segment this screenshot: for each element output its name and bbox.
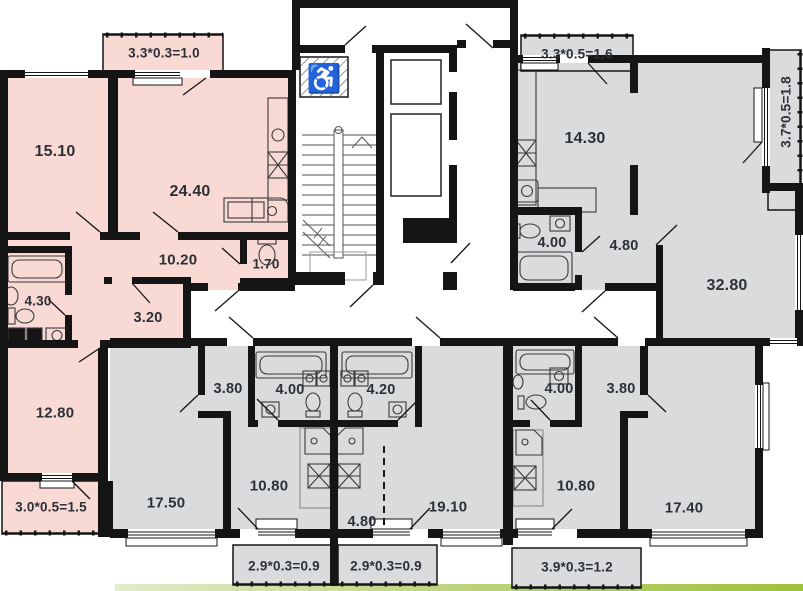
balcony-label: 3.7*0.5=1.8 <box>779 76 794 148</box>
room-area-label: 14.30 <box>564 130 605 148</box>
balcony-label: 3.3*0.5=1.6 <box>541 47 613 62</box>
balcony-label: 2.9*0.3=0.9 <box>248 559 320 574</box>
balcony-label: 2.9*0.3=0.9 <box>350 559 422 574</box>
room-area-label: 17.50 <box>147 495 186 512</box>
room-area-label: 10.80 <box>557 478 596 495</box>
balcony-label: 3.0*0.5=1.5 <box>15 500 87 515</box>
room-area-label: 4.00 <box>544 381 573 397</box>
floor-plan: ♿ <box>0 0 803 591</box>
room-area-label: 1.70 <box>252 257 279 272</box>
room-area-label: 4.00 <box>275 382 304 398</box>
room-area-label: 4.20 <box>366 382 395 398</box>
room-area-label: 15.10 <box>34 143 75 161</box>
room-area-label: 10.80 <box>250 478 289 495</box>
room-area-label: 4.80 <box>347 514 376 530</box>
balcony-label: 3.9*0.3=1.2 <box>541 560 613 575</box>
room-area-label: 19.10 <box>429 499 468 516</box>
stairwell <box>302 127 376 281</box>
room-area-label: 4.80 <box>609 238 638 254</box>
room-area-label: 3.80 <box>606 381 635 397</box>
room-area-label: 3.80 <box>213 381 242 397</box>
room-area-label: 3.20 <box>133 310 162 326</box>
wheelchair-icon: ♿ <box>307 62 342 95</box>
room-area-label: 4.00 <box>537 235 566 251</box>
room-area-label: 4.30 <box>24 294 51 309</box>
room-area-label: 10.20 <box>159 252 198 269</box>
elevators <box>391 60 441 196</box>
grass-strip <box>115 584 803 591</box>
room-area-label: 17.40 <box>665 500 704 517</box>
room-area-label: 12.80 <box>36 405 75 422</box>
balcony-label: 3.3*0.3=1.0 <box>128 46 200 61</box>
room-area-label: 32.80 <box>706 277 747 295</box>
accessible-lift-area: ♿ <box>300 57 348 97</box>
room-area-label: 24.40 <box>169 183 210 201</box>
